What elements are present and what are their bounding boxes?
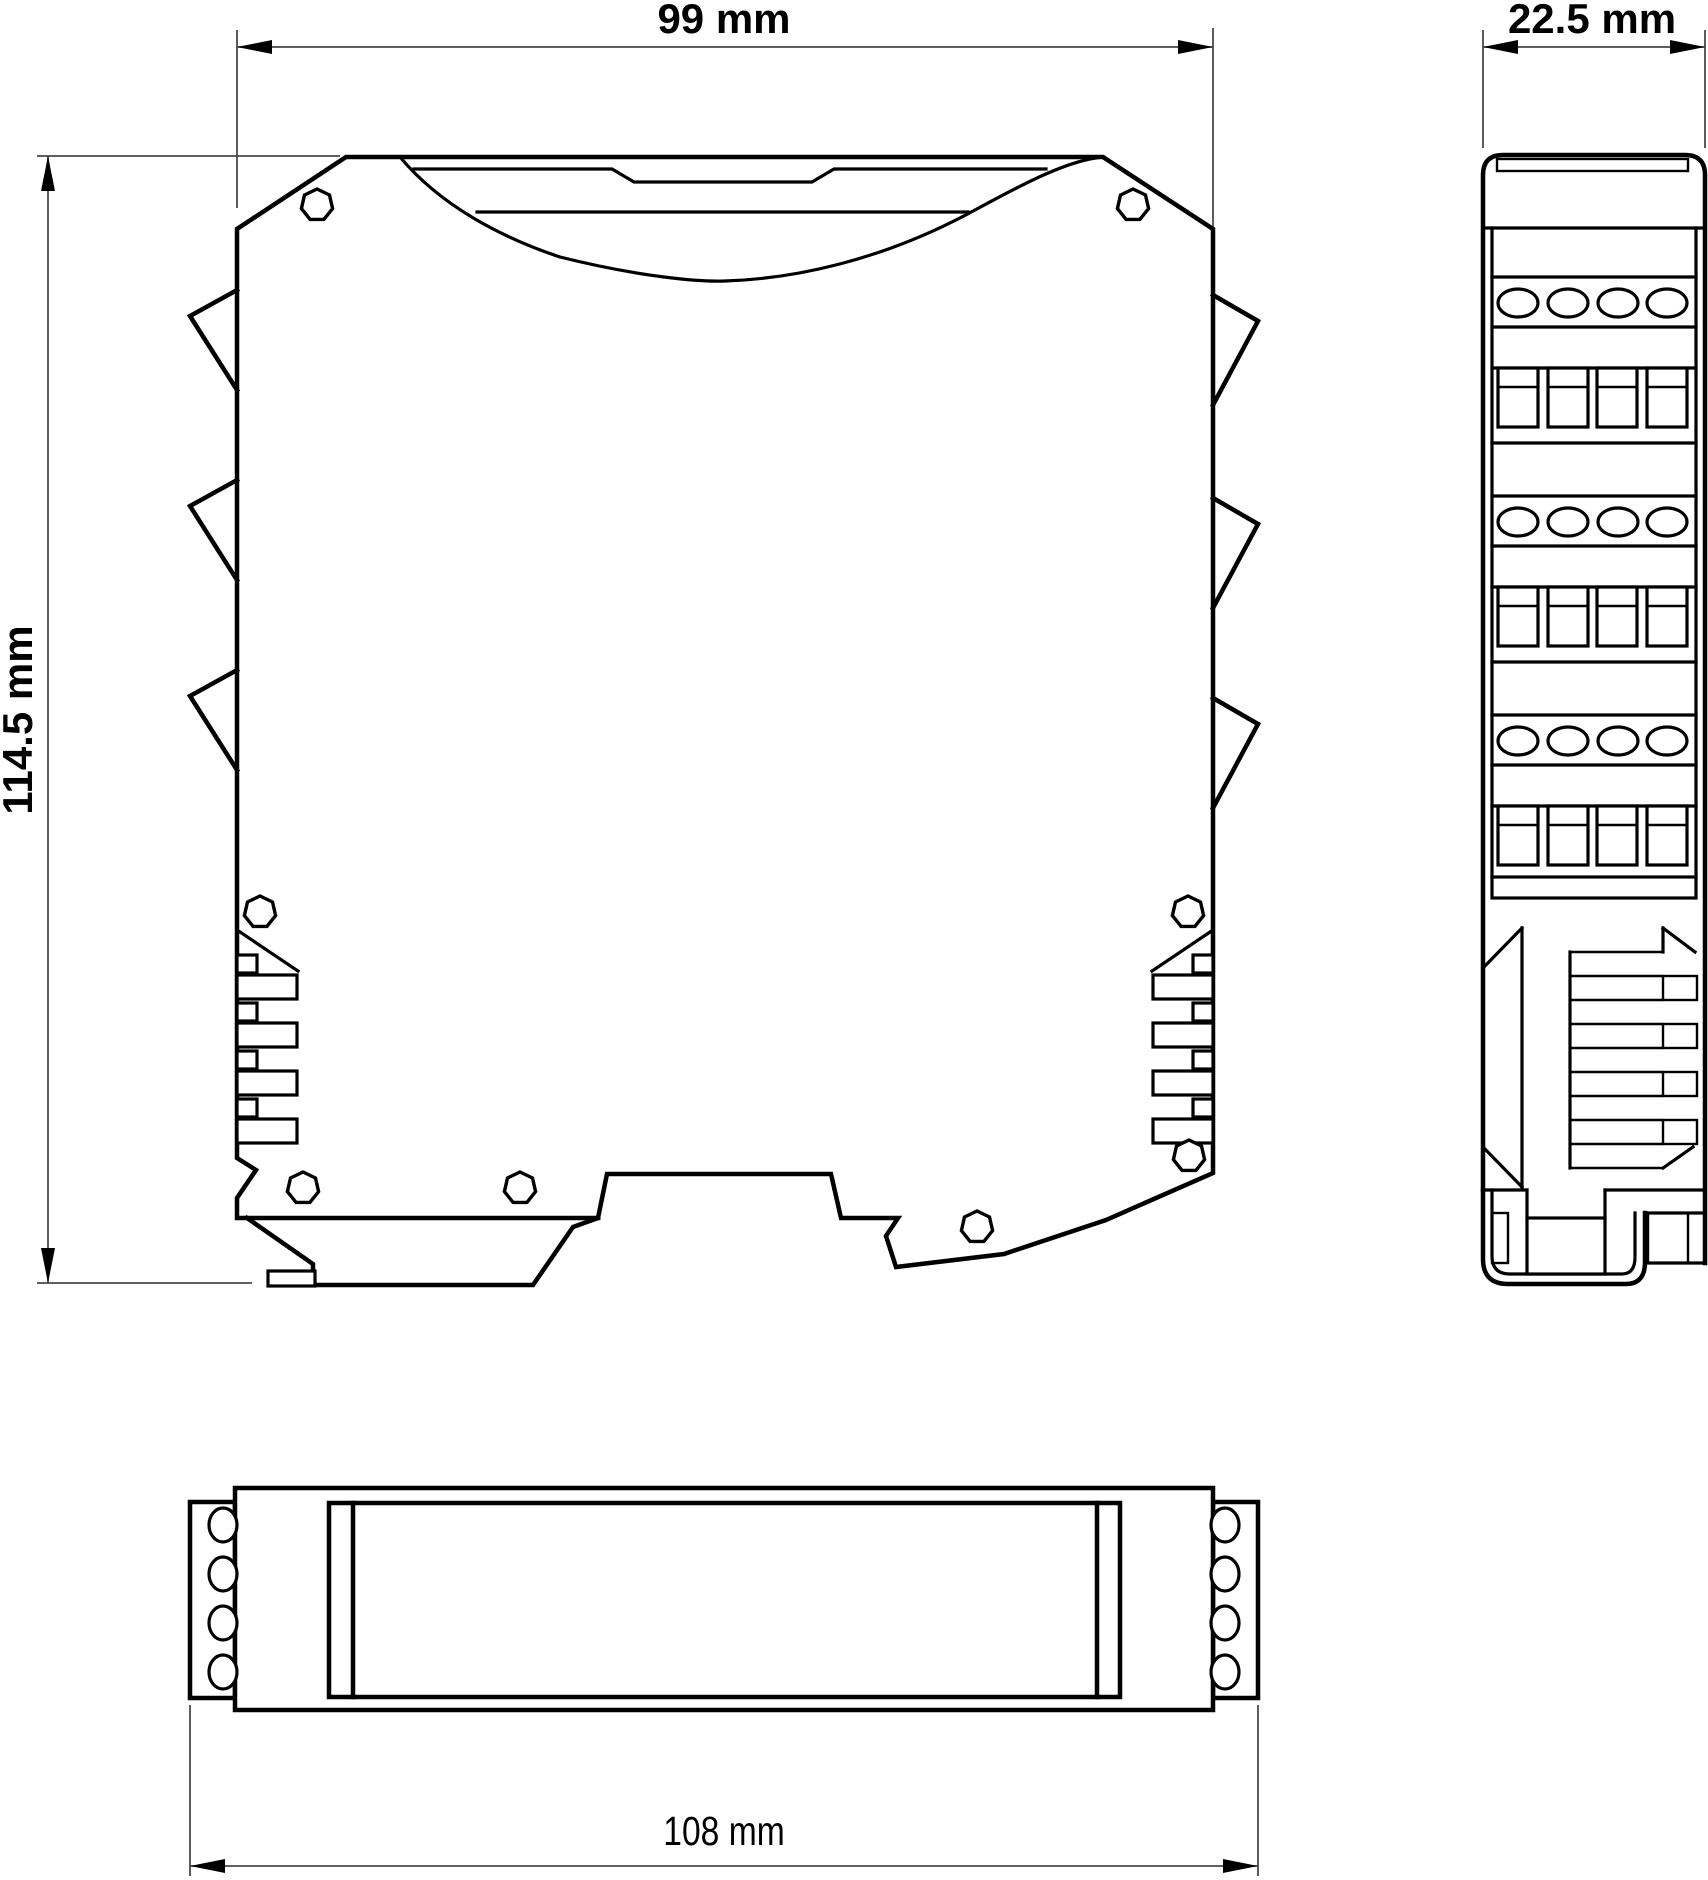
fin: [190, 290, 237, 390]
rib: [237, 955, 257, 973]
wire-entry: [1548, 587, 1588, 646]
arrowhead-right: [1223, 1859, 1258, 1873]
screw-opening: [1647, 289, 1687, 317]
fin: [190, 670, 237, 770]
rib: [1153, 1071, 1213, 1095]
screw-hole-icon: [1172, 896, 1203, 926]
rib: [237, 1099, 257, 1117]
terminal-bump: [209, 1655, 237, 1689]
screw-opening: [1548, 727, 1588, 755]
wire-entry: [1498, 806, 1538, 865]
arrowhead-left: [1483, 40, 1518, 54]
rib: [1193, 1099, 1213, 1117]
wire-entry: [1597, 587, 1637, 646]
screw-hole-icon: [961, 1211, 992, 1241]
screw-opening: [1548, 289, 1588, 317]
wire-entry: [1647, 587, 1687, 646]
side-view: [1483, 155, 1705, 1284]
screw-hole-icon: [287, 1172, 318, 1202]
rib: [237, 1051, 257, 1069]
screw-hole-icon: [1117, 189, 1148, 219]
screw-opening: [1548, 508, 1588, 536]
screw-opening: [1498, 508, 1538, 536]
terminal-bump: [209, 1606, 237, 1640]
side-silhouette: [1483, 155, 1705, 1284]
screw-opening: [1647, 508, 1687, 536]
screw-hole-icon: [301, 189, 332, 219]
rib: [1153, 975, 1213, 999]
rib: [1193, 1003, 1213, 1021]
screw-opening: [1598, 727, 1638, 755]
screw-hole-icon: [1173, 1140, 1204, 1170]
foot-slider-tab: [268, 1271, 315, 1286]
wire-entry: [1647, 368, 1687, 427]
rib: [237, 1119, 297, 1143]
fin: [1213, 698, 1258, 808]
technical-drawing: 99 mm 22.5 mm 114.5 mm 108 mm: [0, 0, 1708, 1880]
side-fins-left: [190, 290, 237, 770]
screw-opening: [1498, 727, 1538, 755]
terminal-bump: [209, 1557, 237, 1591]
arrowhead-bottom: [41, 1248, 55, 1283]
bottom-slot: [1492, 877, 1696, 898]
rib: [1193, 1051, 1213, 1069]
dimension-bottom-length: 108 mm: [190, 1705, 1258, 1876]
terminal-bump: [1211, 1508, 1239, 1542]
screw-opening: [1598, 508, 1638, 536]
wire-entry: [1597, 806, 1637, 865]
bottom-view: [190, 1488, 1258, 1710]
body-outline: [235, 1488, 1213, 1710]
wire-entry: [1548, 368, 1588, 427]
fin: [1213, 498, 1258, 608]
wire-entry: [1498, 587, 1538, 646]
dimension-label-front-width: 99 mm: [657, 0, 790, 42]
dimension-label-bottom-length: 108 mm: [663, 1808, 784, 1854]
arrowhead-right: [1670, 40, 1705, 54]
rib: [237, 1023, 297, 1047]
dimension-label-height: 114.5 mm: [0, 625, 41, 814]
arrowhead-left: [237, 40, 272, 54]
rib: [1193, 955, 1213, 973]
dimension-label-side-depth: 22.5 mm: [1508, 0, 1676, 42]
wire-entry: [1548, 806, 1588, 865]
clip-center-block: [1527, 1218, 1605, 1274]
terminal-bump: [1211, 1655, 1239, 1689]
terminal-bump: [1211, 1557, 1239, 1591]
screw-opening: [1598, 289, 1638, 317]
screw-hole-icon: [244, 896, 275, 926]
fin: [1213, 295, 1258, 405]
arrowhead-left: [190, 1859, 225, 1873]
side-fins-right: [1213, 295, 1258, 808]
arrowhead-top: [41, 156, 55, 191]
front-view: [190, 157, 1258, 1286]
fin: [190, 480, 237, 580]
rib: [1153, 1119, 1213, 1143]
rib: [237, 975, 297, 999]
rib: [237, 1003, 257, 1021]
terminal-bump: [1211, 1606, 1239, 1640]
terminal-bump: [209, 1508, 237, 1542]
housing-outline: [237, 157, 1213, 1267]
dimension-side-depth: 22.5 mm: [1483, 0, 1705, 148]
rib: [1153, 1023, 1213, 1047]
arrowhead-right: [1178, 40, 1213, 54]
screw-hole-icon: [504, 1172, 535, 1202]
screw-opening: [1647, 727, 1687, 755]
screw-opening: [1498, 289, 1538, 317]
wire-entry: [1498, 368, 1538, 427]
drawing-canvas: 99 mm 22.5 mm 114.5 mm 108 mm: [0, 0, 1708, 1880]
wire-entry: [1647, 806, 1687, 865]
wire-entry: [1597, 368, 1637, 427]
rib: [237, 1071, 297, 1095]
